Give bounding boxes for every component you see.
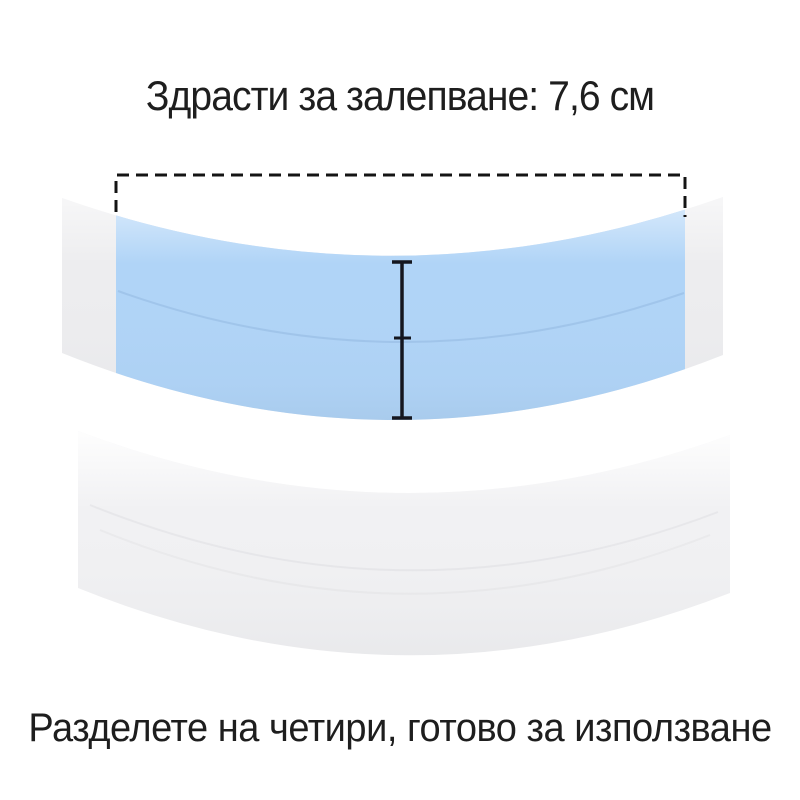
blue-tape-strip [62, 197, 723, 420]
width-measurement-dashed-line [116, 175, 685, 217]
product-image: Здрасти за залепване: 7,6 см [0, 0, 800, 800]
tape-diagram-scene [0, 0, 800, 800]
white-tape-sheen-overlay [78, 431, 730, 655]
white-tape-strip [78, 431, 730, 655]
tape-sheen-overlay [62, 197, 723, 420]
caption-text: Разделете на четири, готово за използван… [20, 706, 780, 751]
